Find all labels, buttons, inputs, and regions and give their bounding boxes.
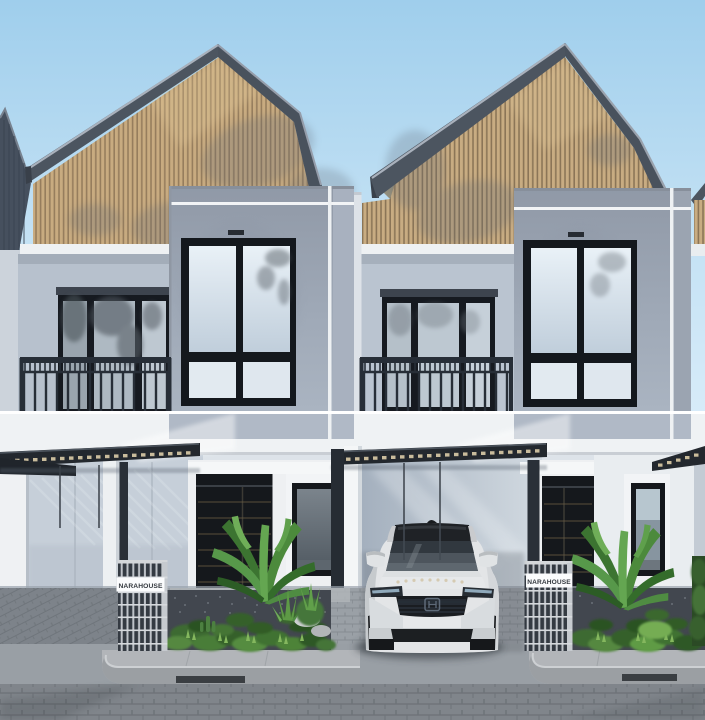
svg-text:NARAHOUSE: NARAHOUSE — [527, 579, 571, 586]
svg-text:NARAHOUSE: NARAHOUSE — [119, 583, 163, 590]
